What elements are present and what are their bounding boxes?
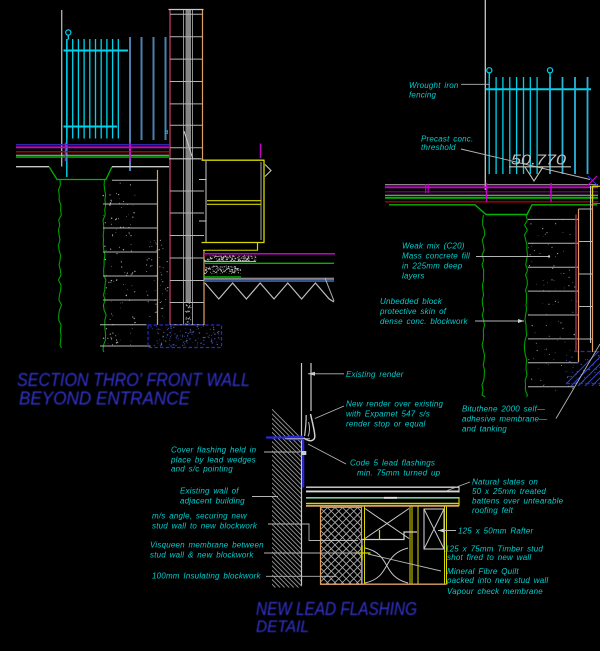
svg-text:in 225mm deep: in 225mm deep [402, 262, 463, 271]
svg-text:125 x 50mm Rafter: 125 x 50mm Rafter [458, 527, 533, 536]
svg-text:dense conc. blockwork: dense conc. blockwork [380, 317, 469, 326]
svg-text:packed into new stud wall: packed into new stud wall [446, 576, 548, 585]
svg-text:Wrought iron: Wrought iron [409, 81, 459, 90]
svg-text:render stop or equal: render stop or equal [346, 420, 426, 429]
svg-text:100mm Insulating blockwork: 100mm Insulating blockwork [152, 572, 262, 581]
svg-text:and s/c pointing: and s/c pointing [171, 465, 233, 474]
svg-text:NEW LEAD FLASHING: NEW LEAD FLASHING [256, 599, 417, 619]
svg-text:stud wall to new blockwork: stud wall to new blockwork [152, 522, 258, 531]
svg-text:Unbedded block: Unbedded block [380, 297, 443, 306]
svg-text:min. 75mm turned up: min. 75mm turned up [357, 469, 441, 478]
svg-text:roofing felt: roofing felt [472, 506, 514, 515]
svg-text:DETAIL: DETAIL [256, 617, 309, 636]
svg-text:Mass concrete fill: Mass concrete fill [402, 252, 470, 261]
svg-text:Cover flashing held in: Cover flashing held in [171, 446, 257, 455]
svg-text:stud wall & new blockwork: stud wall & new blockwork [150, 551, 254, 560]
svg-text:threshold: threshold [421, 143, 456, 152]
svg-text:layers: layers [402, 272, 425, 281]
svg-text:battens over untearable: battens over untearable [472, 497, 564, 506]
svg-text:New render over existing: New render over existing [346, 400, 444, 409]
svg-text:shot fired to new wall: shot fired to new wall [447, 553, 531, 562]
svg-text:Bituthene 2000 self—: Bituthene 2000 self— [462, 405, 546, 414]
svg-text:Vapour check membrane: Vapour check membrane [447, 587, 543, 596]
svg-text:50.770: 50.770 [511, 153, 566, 169]
svg-text:Visqueen membrane between: Visqueen membrane between [150, 541, 264, 550]
svg-text:a: a [165, 129, 169, 136]
svg-text:place by lead wedges: place by lead wedges [170, 456, 256, 465]
svg-text:Code 5 lead flashings: Code 5 lead flashings [350, 459, 435, 468]
svg-text:protective skin of: protective skin of [379, 307, 447, 316]
svg-text:Existing render: Existing render [346, 370, 404, 379]
svg-text:and tanking: and tanking [462, 425, 507, 434]
svg-text:Mineral Fibre Quilt: Mineral Fibre Quilt [447, 567, 519, 576]
svg-text:adhesive membrane—: adhesive membrane— [462, 415, 548, 424]
svg-text:50 x 25mm treated: 50 x 25mm treated [472, 487, 546, 496]
svg-text:m/s angle, securing new: m/s angle, securing new [152, 512, 248, 521]
svg-text:BEYOND ENTRANCE: BEYOND ENTRANCE [19, 389, 191, 409]
svg-text:with Expamet 547 s/s: with Expamet 547 s/s [346, 410, 430, 419]
svg-text:SECTION THRO' FRONT WALL: SECTION THRO' FRONT WALL [17, 370, 250, 390]
svg-text:Existing wall of: Existing wall of [180, 487, 239, 496]
svg-text:adjacent building: adjacent building [180, 497, 245, 506]
svg-text:Weak mix (C20): Weak mix (C20) [402, 242, 465, 251]
svg-text:fencing: fencing [409, 91, 437, 100]
svg-text:Natural slates on: Natural slates on [472, 478, 538, 487]
